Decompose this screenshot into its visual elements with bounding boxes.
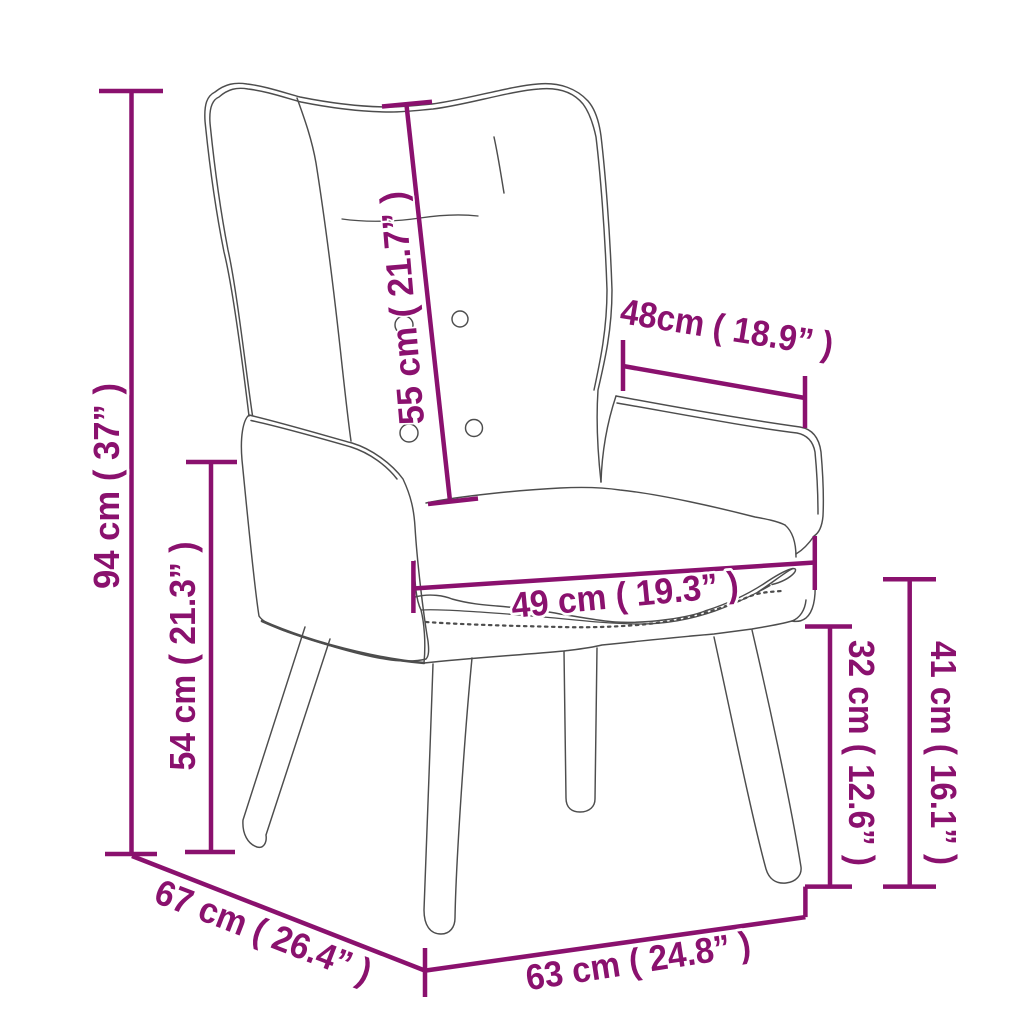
svg-text:94 cm ( 37” ): 94 cm ( 37” ): [86, 383, 127, 589]
svg-text:32 cm ( 12.6” ): 32 cm ( 12.6” ): [841, 640, 882, 866]
svg-text:41 cm ( 16.1” ): 41 cm ( 16.1” ): [923, 641, 964, 865]
svg-text:54 cm ( 21.3” ): 54 cm ( 21.3” ): [162, 542, 203, 771]
